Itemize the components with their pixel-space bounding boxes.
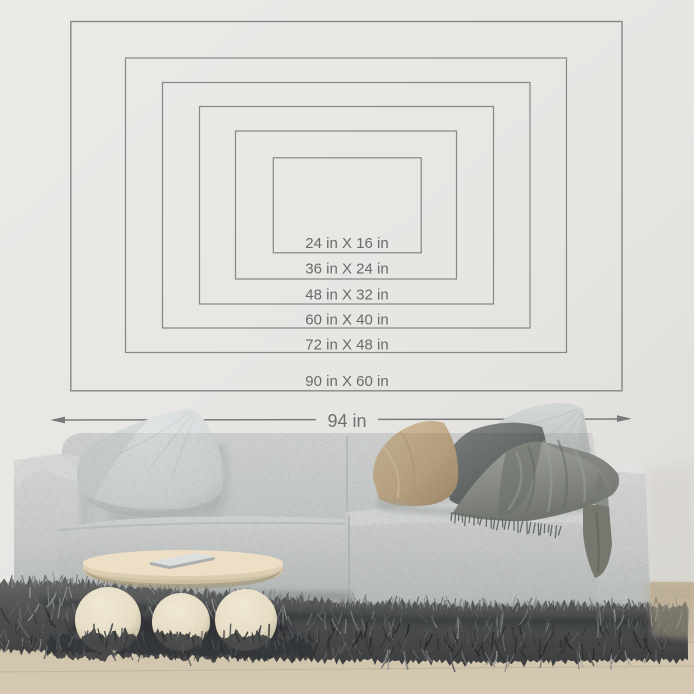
- svg-text:94 in: 94 in: [327, 411, 366, 431]
- svg-text:60 in X 40 in: 60 in X 40 in: [305, 312, 388, 329]
- svg-text:36 in X 24 in: 36 in X 24 in: [305, 261, 388, 278]
- svg-text:48 in X 32 in: 48 in X 32 in: [305, 287, 388, 304]
- svg-text:24 in X 16 in: 24 in X 16 in: [305, 235, 388, 252]
- svg-text:72 in X 48 in: 72 in X 48 in: [305, 337, 388, 354]
- svg-text:90 in X 60 in: 90 in X 60 in: [305, 373, 388, 390]
